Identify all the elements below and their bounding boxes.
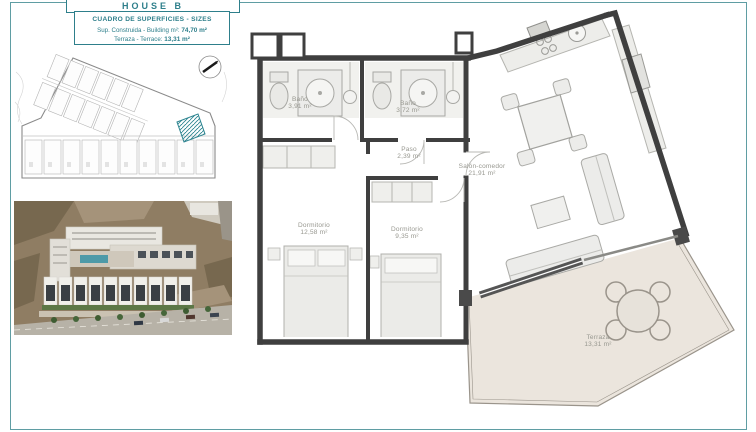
vent-shafts [252, 33, 472, 58]
wardrobes [263, 146, 432, 202]
plan-sheet: HOUSE B CUADRO DE SUPERFICIES - SIZES Su… [0, 0, 756, 432]
dining-table [500, 78, 587, 167]
floor-plan [0, 0, 756, 432]
bed-2 [370, 254, 441, 340]
bed-1 [268, 246, 362, 338]
